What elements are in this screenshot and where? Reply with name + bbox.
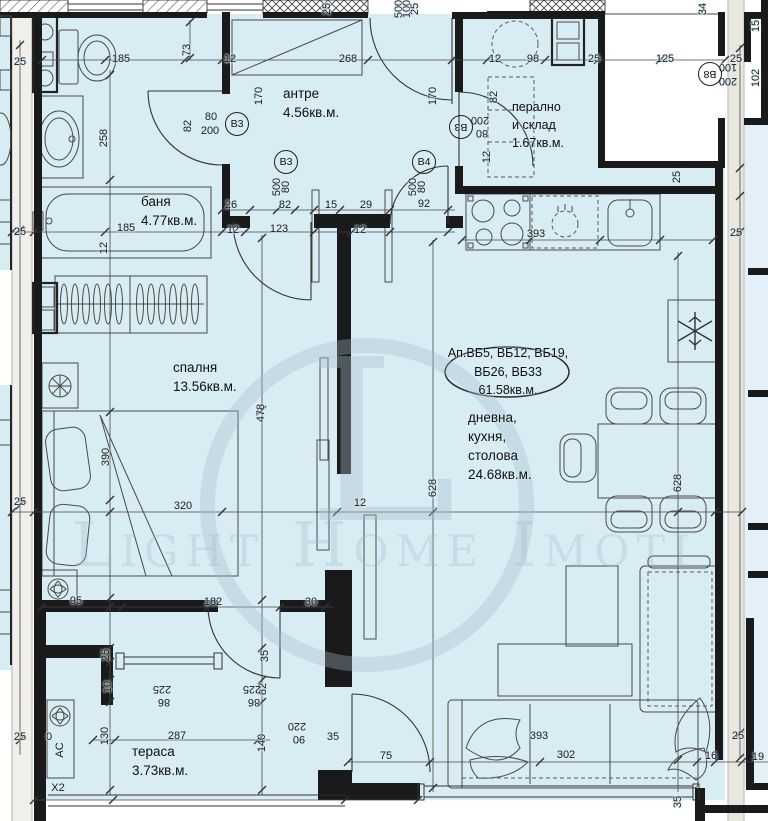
dimension-label: 80 (476, 127, 488, 139)
dimension-label: 25 (588, 53, 600, 65)
dimension-label: 12 (227, 224, 239, 236)
door-tag: В8 (698, 62, 722, 86)
dimension-label: 200 (201, 125, 219, 137)
door-tag: В3 (449, 115, 473, 139)
room-name: кухня, (468, 427, 532, 446)
dimension-label: 268 (339, 53, 357, 65)
room-label-hallway: антре 4.56кв.м. (283, 84, 339, 122)
room-name: перално (512, 98, 564, 116)
room-name: антре (283, 84, 339, 103)
dimension-label: 10 (102, 681, 114, 693)
dimension-label: 25 (732, 730, 744, 742)
dimension-label: 73 (181, 44, 193, 56)
dimension-label: 182 (204, 596, 222, 608)
dimension-label: 80 (416, 181, 428, 193)
room-area: 3.73кв.м. (132, 761, 188, 780)
dimension-label: 185 (117, 222, 135, 234)
dimension-label: 35 (327, 731, 339, 743)
dimension-label: 95 (70, 595, 82, 607)
dimension-label: 25 (671, 171, 683, 183)
dimension-label: X2 (51, 782, 64, 794)
dimension-label: 258 (98, 129, 110, 147)
dimension-label: 478 (255, 404, 267, 422)
dimension-label: 35 (672, 796, 684, 808)
dimension-label: 125 (656, 53, 674, 65)
room-name: баня (141, 192, 197, 211)
room-label-bedroom: спалня 13.56кв.м. (173, 358, 237, 396)
apartment-ids: Ап.ВБ5, ВБ12, ВБ19, (420, 344, 596, 363)
floor-plan-drawing (0, 0, 768, 821)
dimension-label: 90 (293, 733, 305, 745)
dimension-label: 200 (471, 114, 489, 126)
room-name: спалня (173, 358, 237, 377)
dimension-label: 140 (256, 734, 268, 752)
dimension-label: 130 (99, 727, 111, 745)
dimension-label: 98 (527, 53, 539, 65)
room-label-bathroom: баня 4.77кв.м. (141, 192, 197, 230)
dimension-label: 225 (243, 683, 261, 695)
dimension-label: 393 (530, 730, 548, 742)
dimension-label: 80 (205, 111, 217, 123)
dimension-label: 170 (427, 87, 439, 105)
room-label-laundry: перално и склад 1.67кв.м. (512, 98, 564, 152)
dimension-label: 102 (750, 69, 762, 87)
dimension-label: 34 (697, 3, 709, 15)
dimension-label: 12 (481, 151, 493, 163)
room-area: 1.67кв.м. (512, 134, 564, 152)
room-area: 4.77кв.м. (141, 211, 197, 230)
dimension-label: 320 (174, 500, 192, 512)
dimension-label: 12 (224, 53, 236, 65)
room-name: и склад (512, 116, 564, 134)
dimension-label: 86 (248, 696, 260, 708)
dimension-label: 35 (259, 650, 271, 662)
dimension-label: 25 (14, 56, 26, 68)
dimension-label: 82 (182, 120, 194, 132)
dimension-label: 82 (279, 199, 291, 211)
dimension-label: 25 (321, 3, 333, 15)
dimension-label: 29 (360, 199, 372, 211)
room-area: 4.56кв.м. (283, 103, 339, 122)
dimension-label: 75 (380, 750, 392, 762)
dimension-label: 25 (100, 649, 112, 661)
room-name: столова (468, 446, 532, 465)
dimension-label: 12 (354, 497, 366, 509)
dimension-label: 628 (672, 474, 684, 492)
dimension-label: 19 (752, 751, 764, 763)
dimension-label: 25 (14, 226, 26, 238)
dimension-label: 15 (750, 20, 762, 32)
dimension-label: 628 (427, 479, 439, 497)
room-area: 13.56кв.м. (173, 377, 237, 396)
dimension-label: 26 (225, 199, 237, 211)
room-name: тераса (132, 742, 188, 761)
apartment-total-area: 61.58кв.м. (420, 381, 596, 400)
dimension-label: 12 (489, 53, 501, 65)
dimension-label: 225 (153, 683, 171, 695)
dimension-label: 82 (488, 91, 500, 103)
dimension-label: 25 (409, 3, 421, 15)
dimension-label: 12 (354, 224, 366, 236)
dimension-label: 25 (14, 496, 26, 508)
dimension-label: 302 (557, 749, 575, 761)
dimension-label: 80 (280, 181, 292, 193)
dimension-label: 185 (112, 53, 130, 65)
dimension-label: 170 (253, 87, 265, 105)
dimension-label: 287 (168, 730, 186, 742)
dimension-label: 12 (98, 242, 110, 254)
room-label-terrace: тераса 3.73кв.м. (132, 742, 188, 780)
dimension-label: 30 (305, 596, 317, 608)
dimension-label: 25 (14, 731, 26, 743)
dimension-label: AC (54, 742, 66, 757)
room-name: дневна, (468, 408, 532, 427)
apartment-label: Ап.ВБ5, ВБ12, ВБ19, ВБ26, ВБ33 61.58кв.м… (420, 344, 596, 400)
dimension-label: 390 (100, 448, 112, 466)
room-area: 24.68кв.м. (468, 465, 532, 484)
door-tag: В3 (225, 112, 249, 136)
dimension-label: 393 (527, 228, 545, 240)
dimension-label: 0 (46, 731, 52, 743)
floor-plan: L Light Home Imoti баня 4.77кв.м. антре … (0, 0, 768, 821)
dimension-label: 86 (158, 696, 170, 708)
room-label-living: дневна, кухня, столова 24.68кв.м. (468, 408, 532, 484)
apartment-ids: ВБ26, ВБ33 (420, 363, 596, 382)
door-tag: В4 (412, 150, 436, 174)
dimension-label: 16 (705, 750, 717, 762)
dimension-label: 15 (325, 199, 337, 211)
dimension-label: 25 (730, 227, 742, 239)
dimension-label: 123 (270, 223, 288, 235)
dimension-label: 220 (288, 720, 306, 732)
door-tag: В3 (274, 150, 298, 174)
dimension-label: 92 (418, 198, 430, 210)
